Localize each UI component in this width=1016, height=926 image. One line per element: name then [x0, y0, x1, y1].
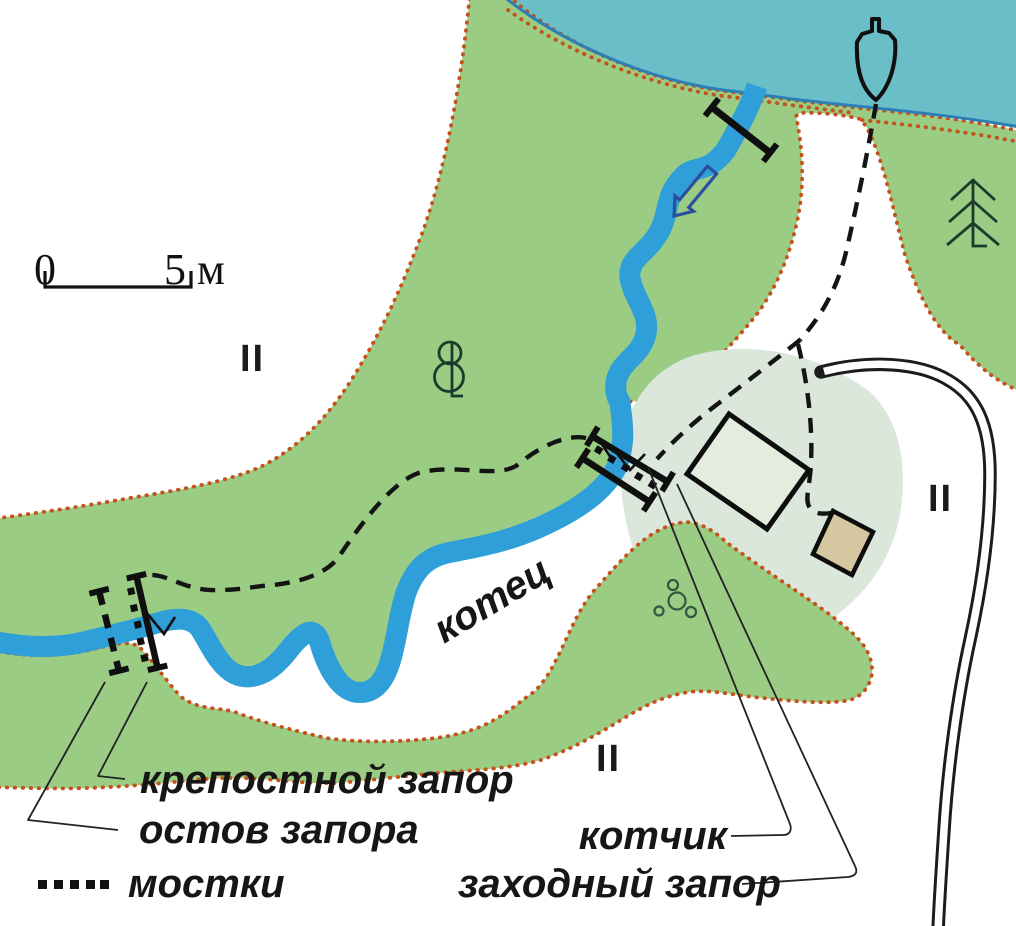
- site-map-page: 0 5 м II II II котец крепостной запор ос…: [0, 0, 1016, 926]
- walkway-dots-legend-icon: [38, 880, 109, 889]
- callout-trap: котчик: [579, 814, 729, 858]
- callout-fortress-barrier: крепостной запор: [140, 758, 514, 802]
- zone-label-bottom: II: [596, 738, 621, 780]
- scale-start-label: 0: [34, 245, 56, 294]
- scale-end-label: 5 м: [164, 245, 225, 294]
- legend-walkways-label: мостки: [128, 862, 285, 906]
- zone-label-upper-left: II: [240, 338, 265, 380]
- trail-from-boat: [800, 104, 876, 340]
- zone-label-right: II: [928, 478, 953, 520]
- site-map: 0 5 м II II II котец крепостной запор ос…: [0, 0, 1016, 926]
- scale-bar: 0 5 м: [34, 245, 225, 294]
- callout-entry-barrier: заходный запор: [458, 862, 781, 906]
- callout-barrier-frame: остов запора: [139, 808, 419, 852]
- legend-walkways: мостки: [38, 862, 285, 906]
